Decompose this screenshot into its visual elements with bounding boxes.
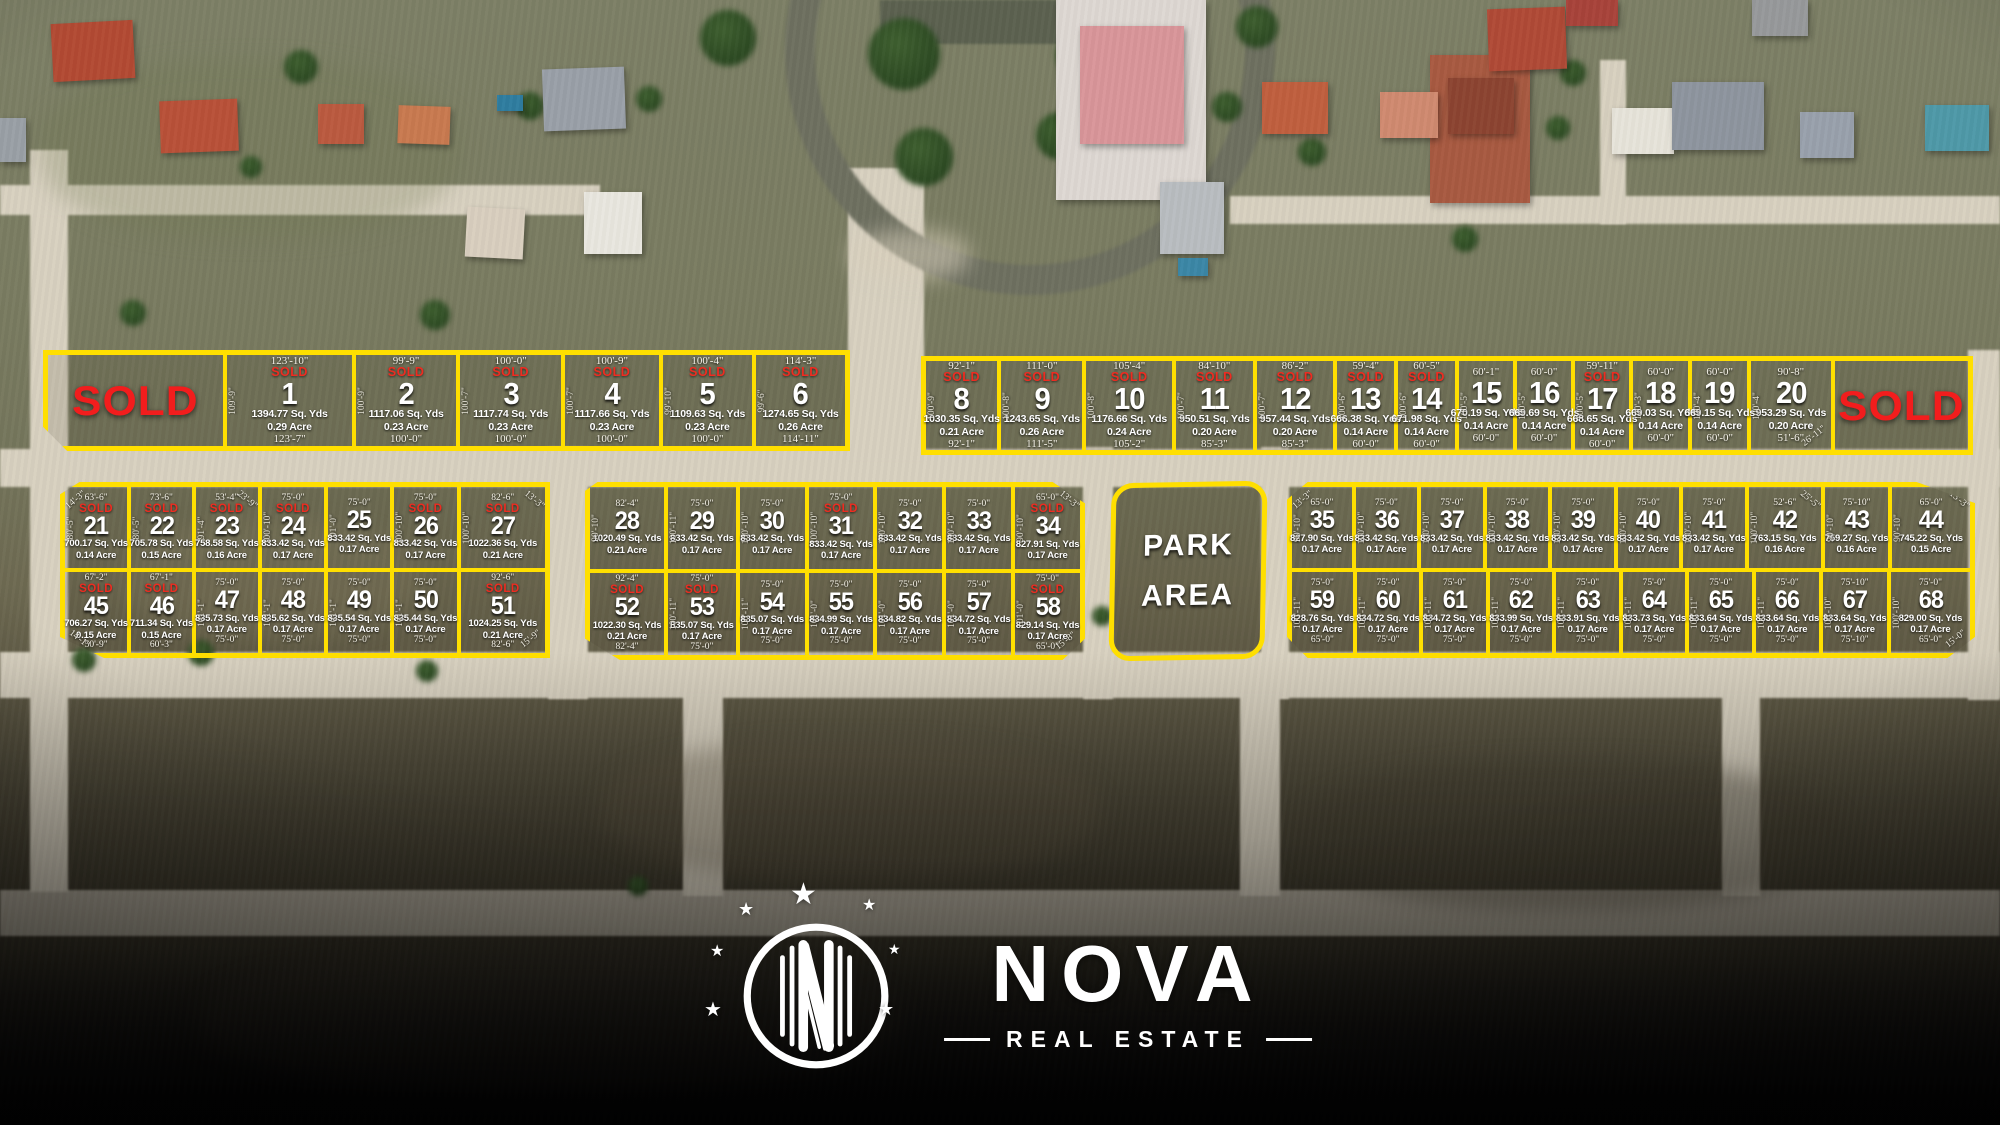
aerial-lot-map: SOLD123'-10"SOLD11394.77 Sq. Yds0.29 Acr… <box>0 0 2000 1125</box>
lot-dimension-bottom: 51'-6" <box>1778 433 1805 445</box>
lot-dimension-side: 100'-5" <box>1461 392 1471 420</box>
lot-dimension-side: 100'-7" <box>1178 392 1188 420</box>
star-icon: ★ <box>738 900 754 918</box>
lot-area-acres: 0.14 Acre <box>1464 420 1509 433</box>
nova-circle-n-icon <box>736 916 896 1076</box>
tagline-right-rule <box>1266 1038 1312 1041</box>
lot-dimension-bottom: 60'-0" <box>1647 433 1674 445</box>
lot-dimension-side: 100'-6" <box>1400 392 1410 420</box>
lot-area-acres: 0.20 Acre <box>1769 420 1814 433</box>
lot-area-acres: 0.14 Acre <box>1638 420 1683 433</box>
lot-number: 10 <box>1114 384 1145 413</box>
lot-number: 18 <box>1645 378 1676 407</box>
lot-area-sqyds: 1176.66 Sq. Yds <box>1091 413 1167 426</box>
star-icon: ★ <box>862 898 876 914</box>
brand-tagline-row: REAL ESTATE <box>944 1026 1312 1053</box>
lot-dimension-side: 100'-4" <box>1694 392 1704 420</box>
lot-number: 12 <box>1280 384 1311 413</box>
lot-number: 9 <box>1034 384 1049 413</box>
star-icon: ★ <box>790 880 817 910</box>
star-icon: ★ <box>888 942 901 956</box>
lot-area-acres: 0.26 Acre <box>1020 426 1065 439</box>
lot-dimension-bottom: 111'-5" <box>1026 439 1057 451</box>
lot-dimension-side: 100'-6" <box>1339 392 1349 420</box>
lot-area-sqyds: 950.51 Sq. Yds <box>1179 413 1250 426</box>
star-icon: ★ <box>878 1000 894 1018</box>
nova-logo: ★★★★★★★ NOVA REAL ESTATE <box>720 898 1312 1088</box>
lot-number: 19 <box>1704 378 1735 407</box>
lot-dimension-bottom: 60'-0" <box>1589 439 1616 451</box>
lot-area-acres: 0.14 Acre <box>1522 420 1567 433</box>
lot-dimension-bottom: 60'-0" <box>1352 439 1379 451</box>
lot-dimension-side: 100'-5" <box>1519 392 1529 420</box>
brand-tagline: REAL ESTATE <box>1006 1026 1250 1053</box>
lot-area-acres: 0.14 Acre <box>1343 426 1388 439</box>
lot-dimension-side: 100'-8" <box>1088 392 1098 420</box>
lot-dimension-bottom: 105'-2" <box>1113 439 1145 451</box>
lot-area-sqyds: 1243.65 Sq. Yds <box>1004 413 1080 426</box>
lot-number: 8 <box>954 384 969 413</box>
lot-area-acres: 0.21 Acre <box>939 426 984 439</box>
lot-dimension-bottom: 60'-0" <box>1706 433 1733 445</box>
lot-dimension-side: 100'-3" <box>1635 392 1645 420</box>
lot-area-acres: 0.14 Acre <box>1404 426 1449 439</box>
nova-monogram-icon: ★★★★★★★ <box>720 898 910 1088</box>
lot-dimension-bottom: 60'-0" <box>1473 433 1500 445</box>
lot-number: 14 <box>1411 384 1442 413</box>
lot-dimension-side: 100'-9" <box>928 392 938 420</box>
star-icon: ★ <box>704 1000 722 1020</box>
lot-number: 13 <box>1350 384 1381 413</box>
lot-dimension-bottom: 60'-0" <box>1413 439 1440 451</box>
lot-dimension-side: 100'-4" <box>1753 392 1763 420</box>
lot-dimension-side: 100'-8" <box>1003 392 1013 420</box>
lot-dimension-bottom: 85'-3" <box>1282 439 1309 451</box>
lot-dimension-bottom: 60'-0" <box>1531 433 1558 445</box>
lot-dimension-bottom: 85'-3" <box>1201 439 1228 451</box>
star-icon: ★ <box>710 944 724 960</box>
lot-dimension-side: 100'-5" <box>1577 392 1587 420</box>
brand-name: NOVA <box>991 934 1264 1014</box>
lot-number: 16 <box>1529 378 1560 407</box>
lot-area-sqyds: 957.44 Sq. Yds <box>1260 413 1331 426</box>
tagline-left-rule <box>944 1038 990 1041</box>
lot-area-sqyds: 953.29 Sq. Yds <box>1756 407 1827 420</box>
lot-area-acres: 0.14 Acre <box>1580 426 1625 439</box>
lot-area-acres: 0.20 Acre <box>1273 426 1318 439</box>
lot-dimension-bottom: 92'-1" <box>948 439 975 451</box>
lot-area-acres: 0.14 Acre <box>1697 420 1742 433</box>
lot-area-acres: 0.20 Acre <box>1192 426 1237 439</box>
lot-number: 15 <box>1471 378 1502 407</box>
lot-number: 11 <box>1200 384 1229 413</box>
lot-area-acres: 0.24 Acre <box>1107 426 1152 439</box>
lot-number: 17 <box>1587 384 1618 413</box>
lot-number: 20 <box>1776 378 1807 407</box>
lot-dimension-side: 100'-7" <box>1259 392 1269 420</box>
nova-wordmark: NOVA REAL ESTATE <box>944 934 1312 1053</box>
